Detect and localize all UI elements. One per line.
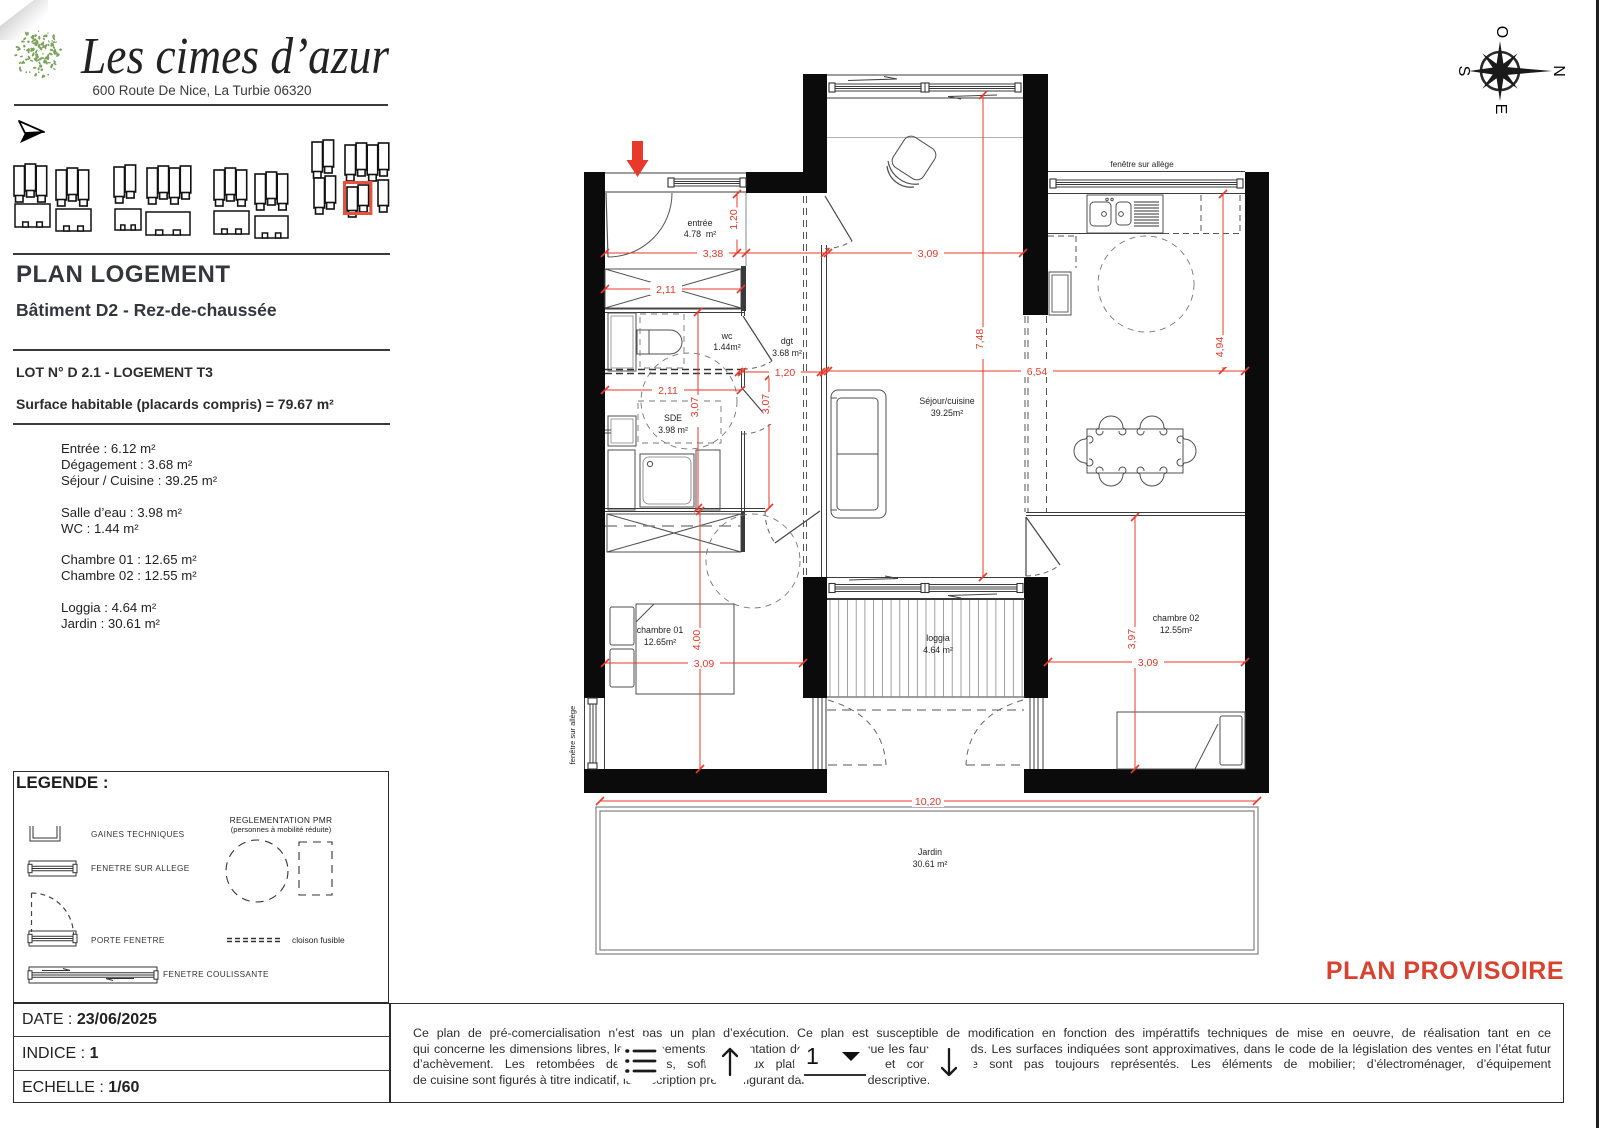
svg-text:fenêtre sur allège: fenêtre sur allège <box>568 706 577 765</box>
svg-text:3,07: 3,07 <box>689 397 701 418</box>
svg-text:30.61 m²: 30.61 m² <box>913 859 948 869</box>
svg-text:2,11: 2,11 <box>658 385 678 397</box>
svg-text:chambre 01: chambre 01 <box>637 625 684 635</box>
svg-text:39.25m²: 39.25m² <box>931 408 963 418</box>
svg-text:cloison fusible: cloison fusible <box>292 935 345 945</box>
svg-text:GAINES TECHNIQUES: GAINES TECHNIQUES <box>91 830 185 839</box>
svg-text:Séjour/cuisine: Séjour/cuisine <box>919 396 974 406</box>
svg-text:O: O <box>1493 26 1510 38</box>
svg-text:4,00: 4,00 <box>691 630 703 651</box>
svg-text:7,48: 7,48 <box>974 329 986 350</box>
svg-text:1,20: 1,20 <box>728 209 740 230</box>
svg-text:3.68 m²: 3.68 m² <box>772 348 802 358</box>
svg-text:(personnes à mobilité réduite): (personnes à mobilité réduite) <box>231 825 332 834</box>
svg-text:E: E <box>1492 104 1509 115</box>
svg-text:S: S <box>1455 66 1472 77</box>
svg-text:REGLEMENTATION PMR: REGLEMENTATION PMR <box>230 815 333 825</box>
svg-text:12.65m²: 12.65m² <box>644 637 676 647</box>
svg-text:SDE: SDE <box>664 413 682 423</box>
svg-text:12.55m²: 12.55m² <box>1160 625 1192 635</box>
svg-text:entrée: entrée <box>688 218 713 228</box>
svg-text:3,09: 3,09 <box>694 658 715 670</box>
svg-text:wc: wc <box>721 331 733 341</box>
svg-text:1.44m²: 1.44m² <box>713 342 740 352</box>
svg-text:4.78 m²: 4.78 m² <box>684 229 716 239</box>
svg-text:dgt: dgt <box>781 336 794 346</box>
svg-text:1,20: 1,20 <box>775 367 796 379</box>
svg-text:3.98 m²: 3.98 m² <box>658 425 688 435</box>
svg-text:3,09: 3,09 <box>1138 657 1159 669</box>
svg-text:N: N <box>1550 65 1567 77</box>
svg-text:3,07: 3,07 <box>760 394 772 415</box>
svg-text:loggia: loggia <box>926 633 950 643</box>
svg-text:FENETRE COULISSANTE: FENETRE COULISSANTE <box>163 970 269 979</box>
svg-text:4.64 m²: 4.64 m² <box>923 645 953 655</box>
svg-text:4,94: 4,94 <box>1214 337 1226 358</box>
svg-text:3,97: 3,97 <box>1126 629 1138 650</box>
svg-text:Jardin: Jardin <box>918 847 942 857</box>
svg-text:chambre 02: chambre 02 <box>1153 613 1200 623</box>
svg-text:10,20: 10,20 <box>915 796 941 808</box>
svg-text:FENETRE SUR ALLEGE: FENETRE SUR ALLEGE <box>91 864 190 873</box>
svg-text:fenêtre sur allège: fenêtre sur allège <box>1110 160 1174 169</box>
svg-text:PORTE FENETRE: PORTE FENETRE <box>91 936 165 945</box>
svg-text:2,11: 2,11 <box>656 284 676 296</box>
svg-text:6,54: 6,54 <box>1027 366 1048 378</box>
svg-text:3,09: 3,09 <box>918 248 939 260</box>
svg-text:3,38: 3,38 <box>703 248 724 260</box>
